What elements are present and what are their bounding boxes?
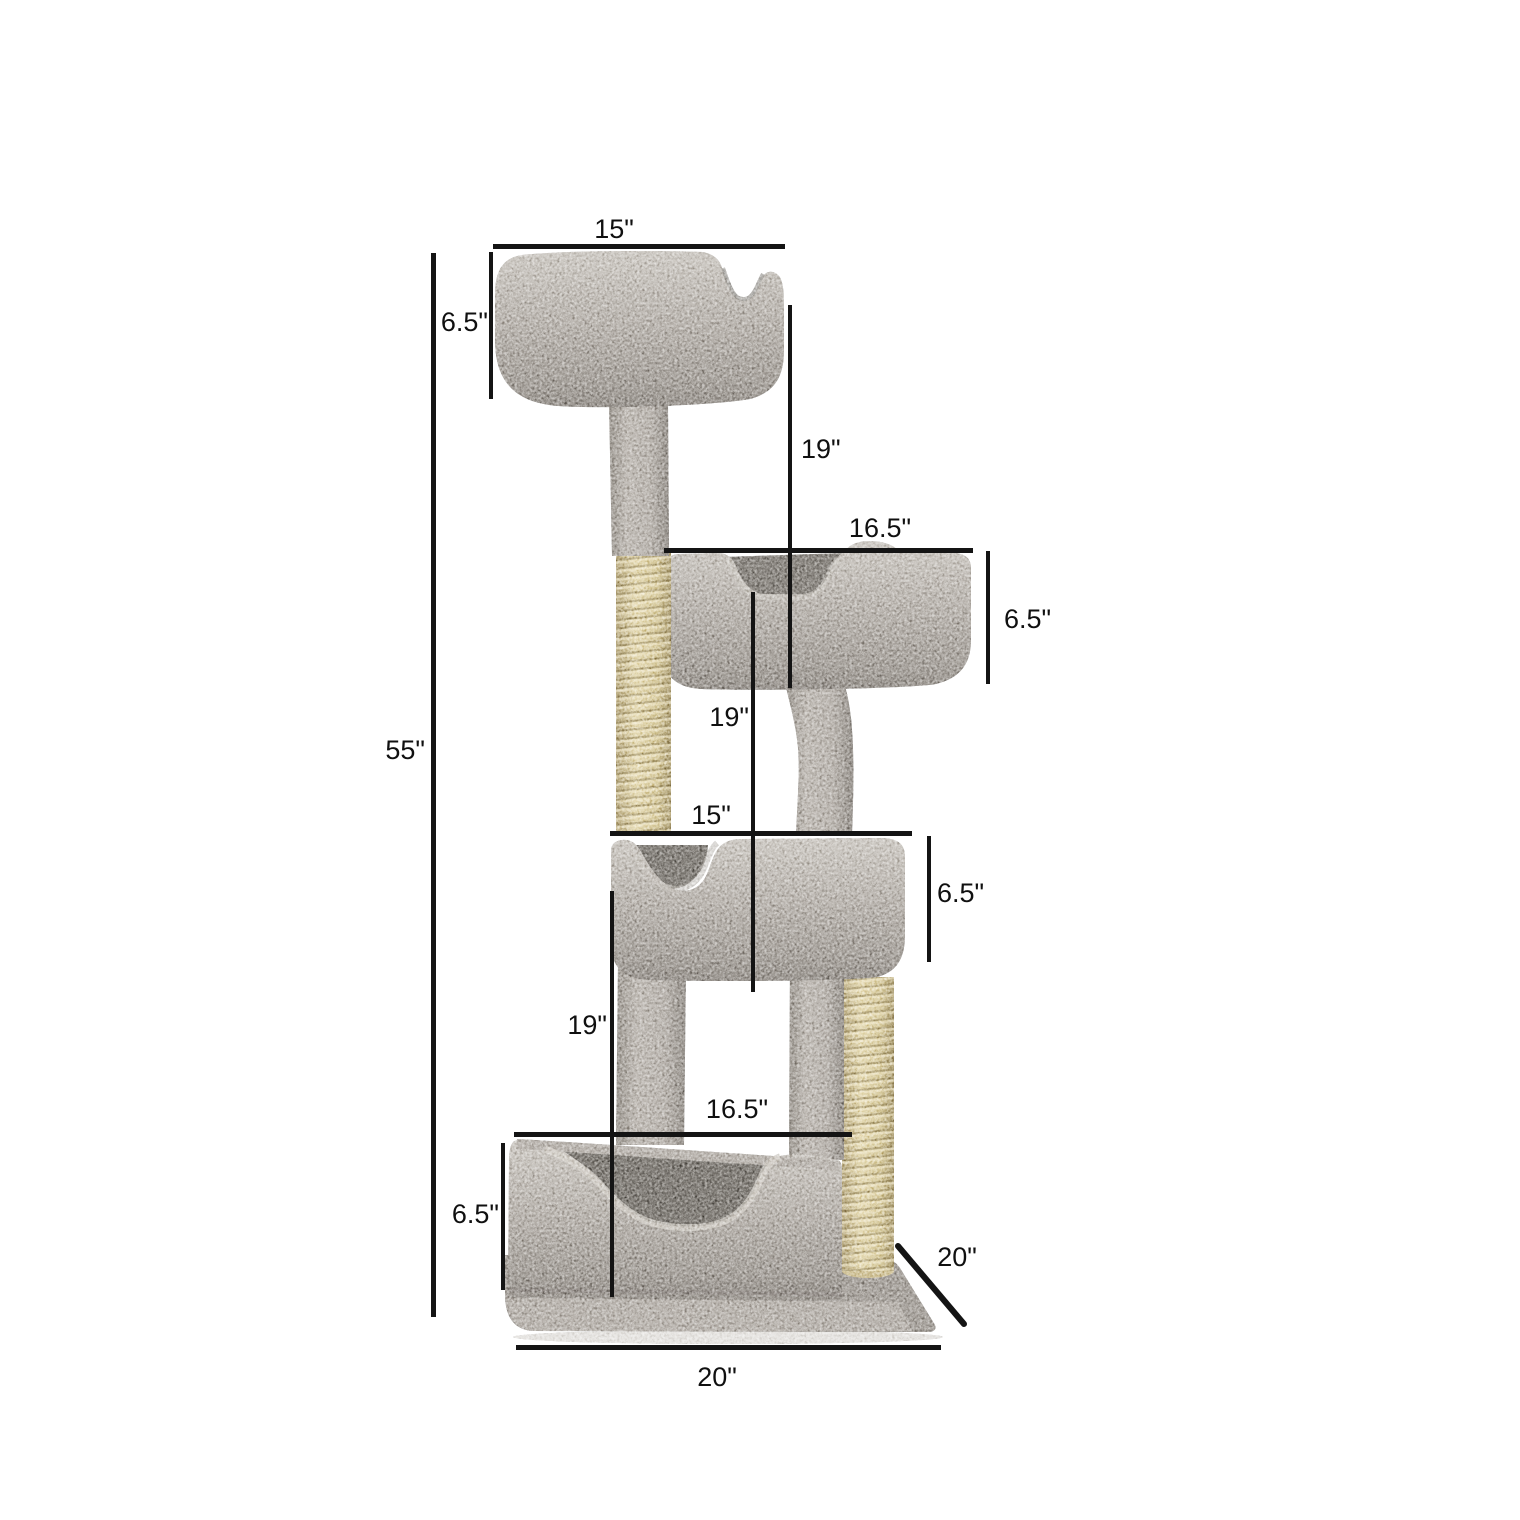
svg-text:19": 19": [709, 702, 749, 732]
svg-text:20": 20": [697, 1362, 737, 1392]
svg-text:6.5": 6.5": [937, 878, 984, 908]
svg-text:16.5": 16.5": [706, 1094, 768, 1124]
svg-text:6.5": 6.5": [452, 1199, 499, 1229]
svg-text:15": 15": [594, 214, 634, 244]
svg-text:15": 15": [691, 800, 731, 830]
svg-text:19": 19": [801, 434, 841, 464]
svg-text:6.5": 6.5": [1004, 604, 1051, 634]
svg-text:20": 20": [937, 1242, 977, 1272]
svg-text:6.5": 6.5": [441, 307, 488, 337]
svg-text:55": 55": [385, 735, 425, 765]
svg-text:19": 19": [567, 1010, 607, 1040]
svg-text:16.5": 16.5": [849, 513, 911, 543]
